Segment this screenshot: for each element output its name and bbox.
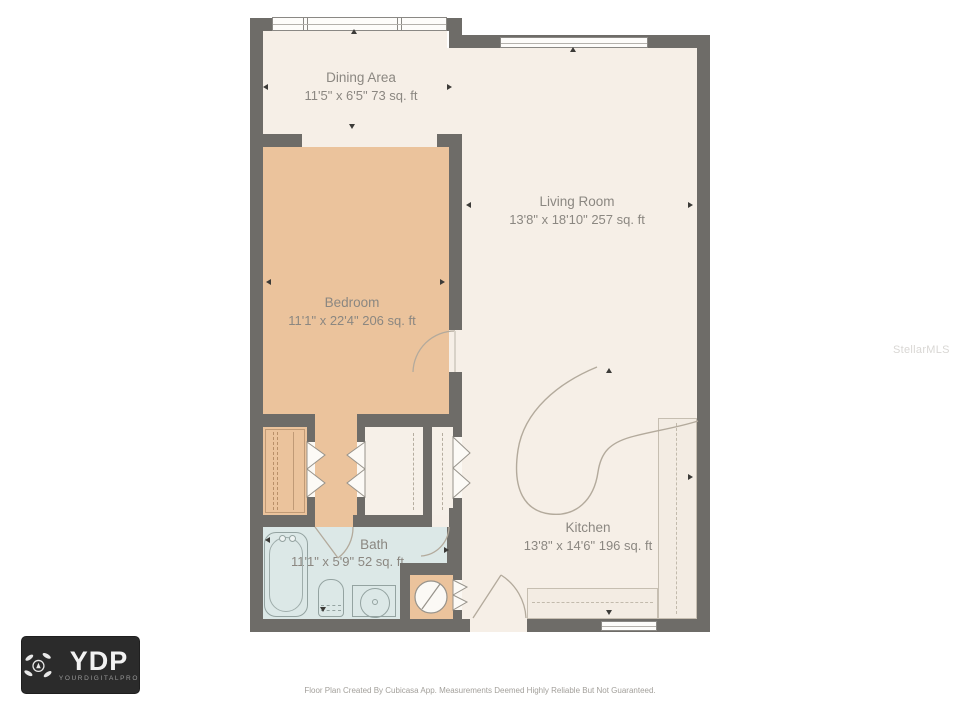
wall <box>453 427 462 437</box>
measure-arrow-left <box>263 84 268 90</box>
room-dims: 11'1" x 22'4" 206 sq. ft <box>288 312 415 330</box>
wall <box>697 35 710 632</box>
room-dims: 13'8" x 18'10" 257 sq. ft <box>509 211 645 229</box>
wall <box>453 610 462 619</box>
bedroom-door-opening <box>449 330 462 372</box>
measure-arrow-right <box>444 547 449 553</box>
bifold-opening <box>357 442 365 497</box>
bifold-opening <box>453 437 462 498</box>
wall <box>400 563 410 619</box>
laundry-floor <box>408 575 453 619</box>
measure-arrow-up <box>351 29 357 34</box>
measure-arrow-up <box>570 47 576 52</box>
middle-closet-floor <box>365 427 423 515</box>
wall <box>449 508 462 527</box>
room-name: Living Room <box>509 193 645 211</box>
room-name: Kitchen <box>524 519 652 537</box>
ydp-logo: YDP YOURDIGITALPRO <box>22 637 139 693</box>
measure-arrow-left <box>265 537 270 543</box>
wall <box>423 427 432 515</box>
logo-abbr: YDP <box>70 648 129 674</box>
vanity-sink-icon <box>352 585 396 617</box>
dining-area-label: Dining Area 11'5" x 6'5" 73 sq. ft <box>305 69 418 105</box>
bifold-opening <box>307 442 315 497</box>
toilet-tank-line <box>321 605 341 606</box>
wall <box>250 515 315 527</box>
measure-arrow-right <box>688 202 693 208</box>
wardrobe-shelf <box>293 432 294 510</box>
measure-arrow-down <box>349 124 355 129</box>
room-name: Bath <box>360 536 388 554</box>
faucet-knob-icon <box>279 535 286 542</box>
bedroom-label: Bedroom 11'1" x 22'4" 206 sq. ft <box>288 294 415 330</box>
faucet-knob-icon <box>289 535 296 542</box>
cabinet-dash-line <box>676 423 677 614</box>
cabinet-dash-line <box>532 602 653 603</box>
measure-arrow-right <box>447 84 452 90</box>
measure-arrow-right <box>688 474 693 480</box>
measure-arrow-down <box>606 610 612 615</box>
bathtub-basin <box>269 537 303 612</box>
dining-bedroom-opening <box>302 134 437 147</box>
sink-drain <box>372 599 378 605</box>
measure-arrow-left <box>466 202 471 208</box>
measure-arrow-up <box>606 368 612 373</box>
room-dims: 13'8" x 14'6" 196 sq. ft <box>524 537 652 555</box>
wall <box>357 427 365 442</box>
bath-label: Bath <box>360 536 388 554</box>
wall <box>449 134 462 330</box>
measure-arrow-left <box>266 279 271 285</box>
dining-window <box>272 17 447 31</box>
entry-door-opening <box>470 619 527 632</box>
bifold-opening <box>453 580 462 610</box>
wall <box>250 134 302 147</box>
kitchen-counter-bottom <box>527 588 658 619</box>
footer-disclaimer: Floor Plan Created By Cubicasa App. Meas… <box>0 686 960 695</box>
drone-camera-icon <box>22 647 55 683</box>
closet-shelf-line <box>413 433 414 510</box>
kitchen-label: Kitchen 13'8" x 14'6" 196 sq. ft <box>524 519 652 555</box>
living-room-label: Living Room 13'8" x 18'10" 257 sq. ft <box>509 193 645 229</box>
wall <box>353 515 432 527</box>
window-mullion <box>397 18 402 30</box>
window-mullion <box>303 18 308 30</box>
closet-shelf-line <box>442 433 443 510</box>
wall <box>357 414 462 427</box>
bathtub-icon <box>264 532 308 617</box>
kitchen-window <box>601 621 657 631</box>
wall <box>307 427 315 442</box>
wardrobe-rail <box>277 432 278 510</box>
floorplan-canvas: Dining Area 11'5" x 6'5" 73 sq. ft Livin… <box>0 0 960 720</box>
wall <box>250 18 263 632</box>
kitchen-counter-right <box>658 418 697 619</box>
wall <box>250 414 315 427</box>
bedroom-floor <box>262 147 449 414</box>
room-name: Bedroom <box>288 294 415 312</box>
measure-arrow-right <box>440 279 445 285</box>
hall-floor <box>315 414 357 527</box>
bath-second-door-opening <box>432 515 449 527</box>
wardrobe-icon <box>265 429 305 513</box>
measure-arrow-down <box>320 607 326 612</box>
room-dims: 11'5" x 6'5" 73 sq. ft <box>305 87 418 105</box>
mls-watermark: StellarMLS <box>893 344 950 356</box>
logo-name: YOURDIGITALPRO <box>59 675 139 682</box>
room-name: Dining Area <box>305 69 418 87</box>
wardrobe-rail <box>273 432 274 510</box>
